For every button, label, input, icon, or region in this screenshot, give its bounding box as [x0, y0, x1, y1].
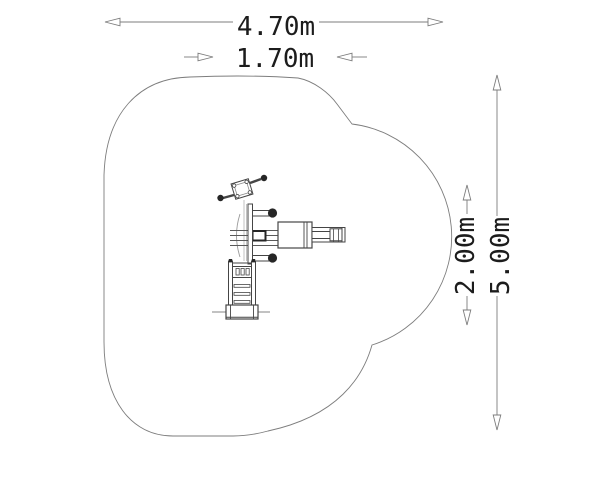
beam-seat-box — [278, 222, 312, 248]
dimension-arrow-up-icon — [493, 75, 501, 90]
dimension-label-total-width: 4.70m — [237, 12, 315, 42]
post-knob-icon — [268, 208, 277, 217]
dimension-arrow-right-icon — [428, 18, 443, 26]
rail-cap-icon — [229, 259, 232, 262]
safety-area-outline — [104, 76, 452, 436]
post-knob-icon — [268, 253, 277, 262]
dimension-arrow-inward-right-icon — [198, 53, 213, 61]
play-equipment — [212, 175, 345, 319]
slider-block — [253, 231, 266, 241]
plan-svg: 4.70m 1.70m 2.00m 5.00m — [0, 0, 613, 490]
dimension-label-total-depth: 5.00m — [486, 217, 516, 295]
slide-top-view — [212, 259, 270, 319]
dimension-arrow-up-icon — [463, 185, 471, 200]
handle-knob-icon — [217, 195, 223, 201]
plan-drawing: 4.70m 1.70m 2.00m 5.00m — [0, 0, 613, 490]
beam-extension — [312, 228, 345, 243]
dimension-arrow-inward-left-icon — [337, 53, 352, 61]
dimension-arrow-down-icon — [463, 310, 471, 325]
handle-knob-icon — [261, 175, 267, 181]
spring-rocker-panel — [217, 175, 267, 201]
dimension-label-equipment-depth: 2.00m — [451, 217, 481, 295]
dimension-arrow-left-icon — [105, 18, 120, 26]
dimension-arrow-down-icon — [493, 415, 501, 430]
dimension-label-equipment-width: 1.70m — [236, 44, 314, 74]
rail-cap-icon — [252, 259, 255, 262]
